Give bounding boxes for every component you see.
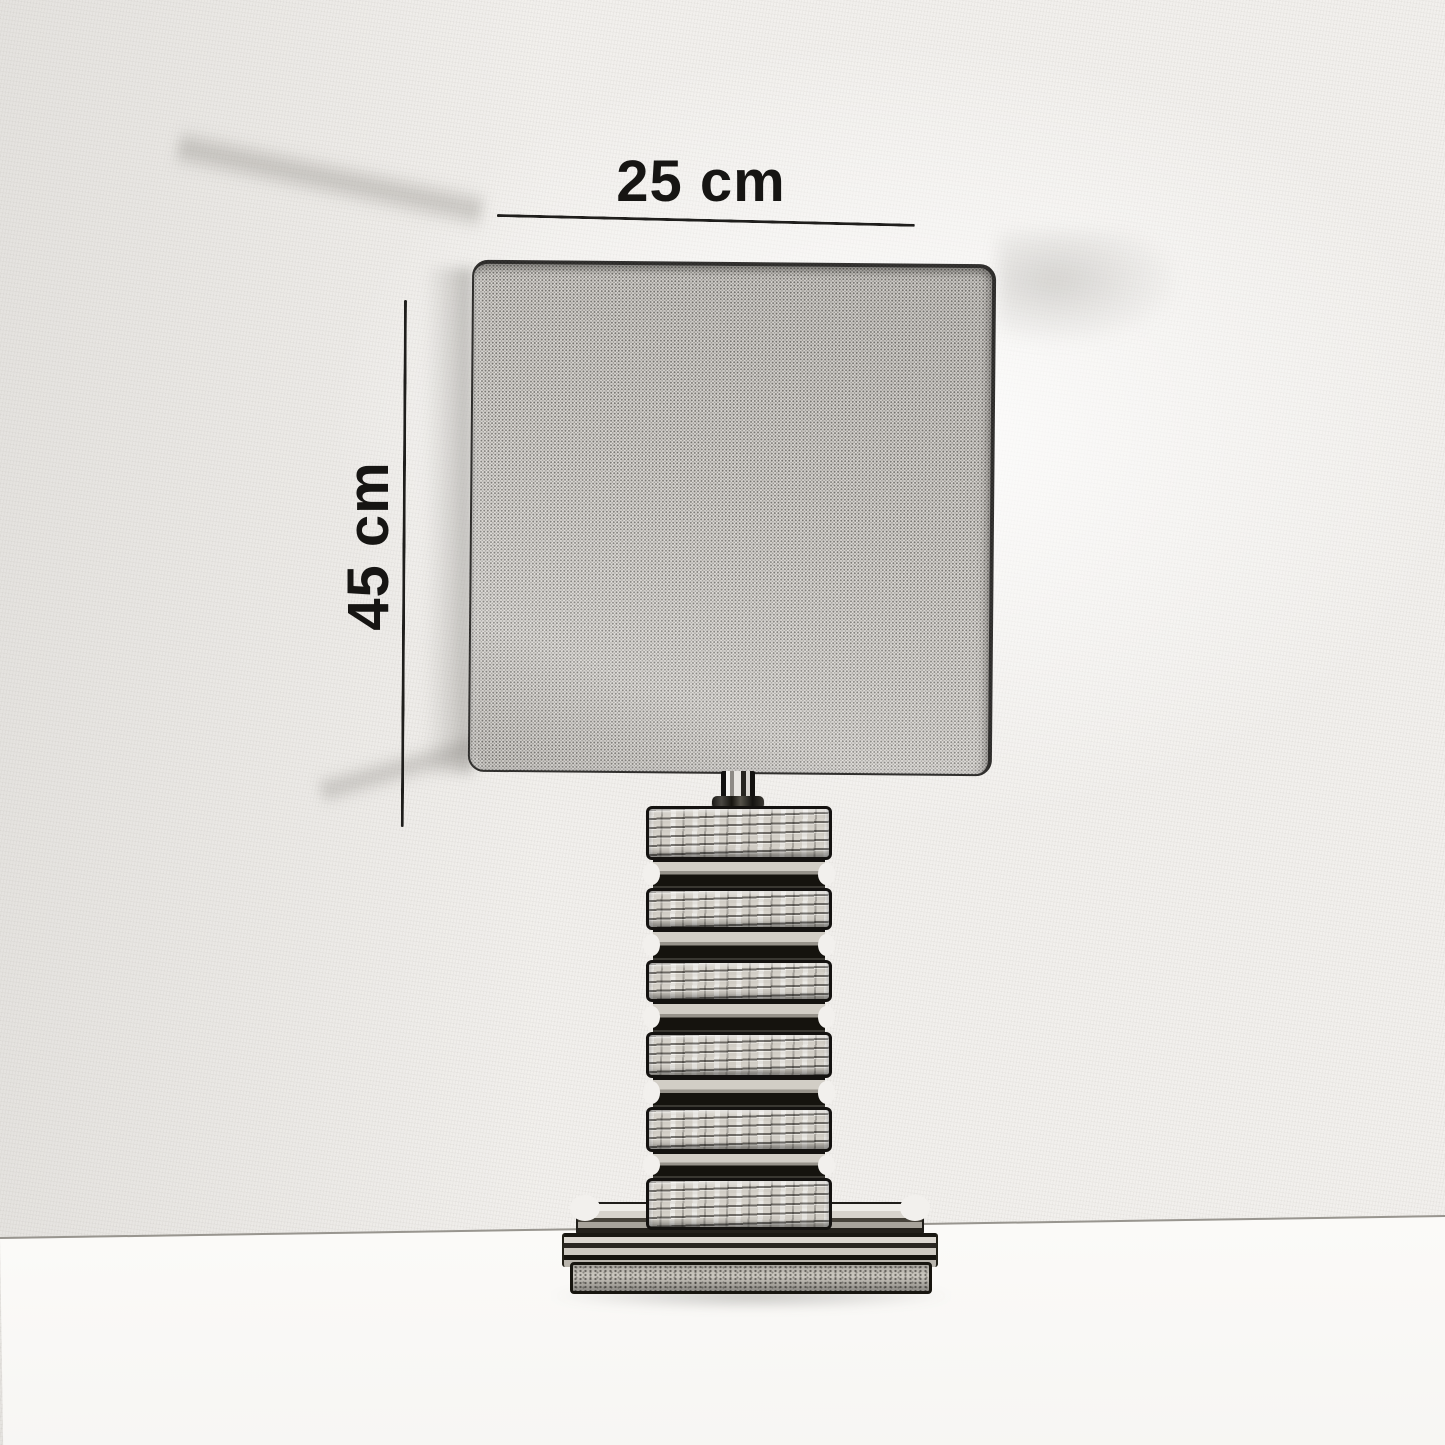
lamp-column-block	[646, 960, 832, 1002]
lamp-column-block	[646, 1107, 832, 1152]
wall-fold-shadow-right	[998, 232, 1183, 347]
sketch-scene: 25 cm 45 cm	[0, 0, 1445, 1445]
lamp-column-block	[646, 1178, 832, 1230]
height-dimension-label: 45 cm	[339, 436, 399, 656]
width-dimension-line	[497, 214, 915, 227]
wall-fold-shadow-left	[425, 268, 473, 773]
lamp-pedestal-plinth	[570, 1262, 932, 1294]
lamp-column-block	[646, 806, 832, 860]
lamp-column	[646, 806, 832, 1230]
lamp-column-groove	[653, 1078, 825, 1107]
lamp-column-groove	[653, 930, 825, 960]
lamp-shade	[468, 260, 996, 777]
lamp-column-block	[646, 1032, 832, 1078]
width-dimension-label: 25 cm	[601, 148, 801, 215]
lamp-column-groove	[653, 860, 825, 888]
lamp-column-block	[646, 888, 832, 930]
wall-fold-shadow-top-left	[174, 126, 486, 232]
lamp-column-groove	[653, 1152, 825, 1178]
height-dimension-line	[401, 300, 407, 827]
lamp-column-groove	[653, 1002, 825, 1032]
